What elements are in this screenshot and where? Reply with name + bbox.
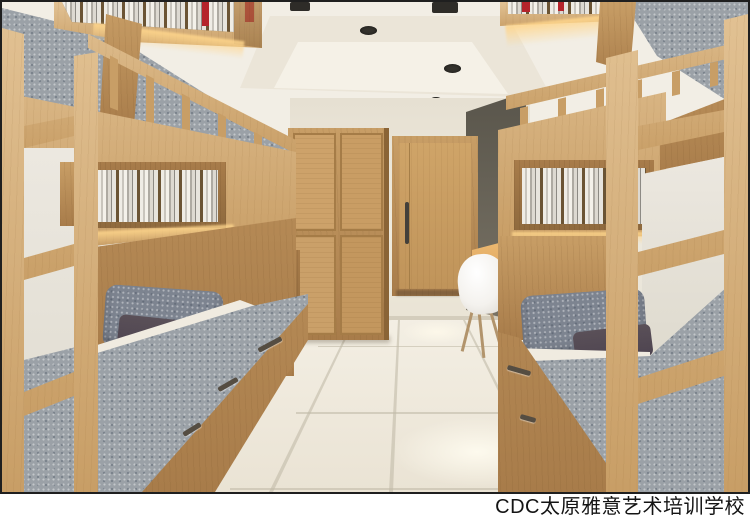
wardrobe-door-panel [340, 235, 383, 335]
tile-grout-line [318, 346, 524, 347]
ceiling-downlight [290, 2, 310, 11]
caption-bar: CDC太原雅意艺术培训学校 [0, 494, 750, 520]
ceiling-downlight [360, 26, 377, 35]
ceiling-tray-inner [272, 40, 512, 96]
wardrobe-side-edge [384, 128, 389, 340]
ceiling-downlight [432, 2, 458, 13]
dorm-room-photo [2, 2, 748, 492]
ceiling-downlight [444, 64, 461, 73]
watermark-text: CDC太原雅意艺术培训学校 [495, 497, 750, 517]
left-shelf-books [98, 170, 218, 222]
red-book [522, 2, 530, 12]
door-handle [405, 202, 409, 244]
floor-sheen [402, 320, 472, 344]
wardrobe-door-panel [293, 133, 336, 231]
photo-frame [0, 0, 750, 494]
red-book [558, 2, 564, 11]
red-book [202, 2, 209, 26]
wardrobe-door-panel [340, 133, 383, 231]
door-seam [409, 143, 410, 289]
